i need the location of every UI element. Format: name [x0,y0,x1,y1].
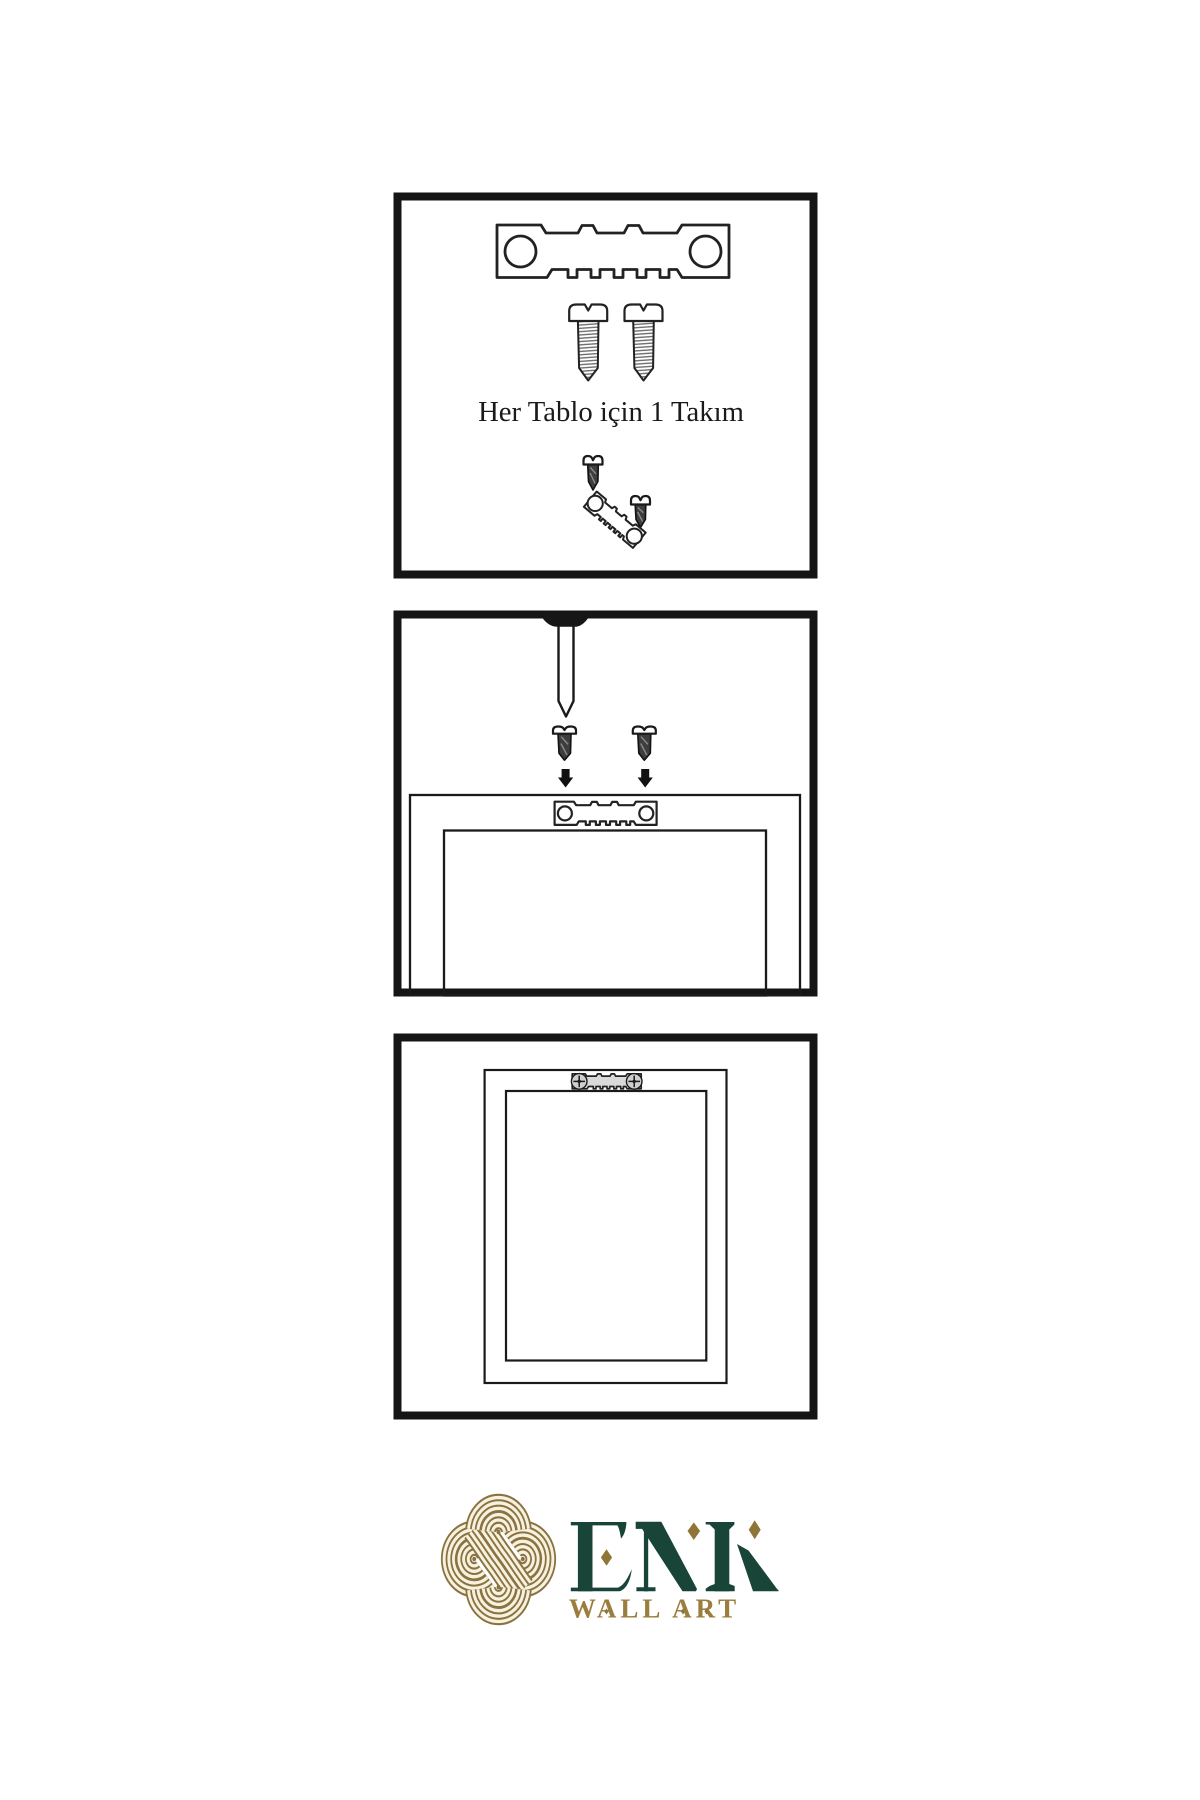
svg-text:Her Tablo için 1 Takım: Her Tablo için 1 Takım [478,396,744,428]
svg-text:WALL ART: WALL ART [569,1594,740,1624]
